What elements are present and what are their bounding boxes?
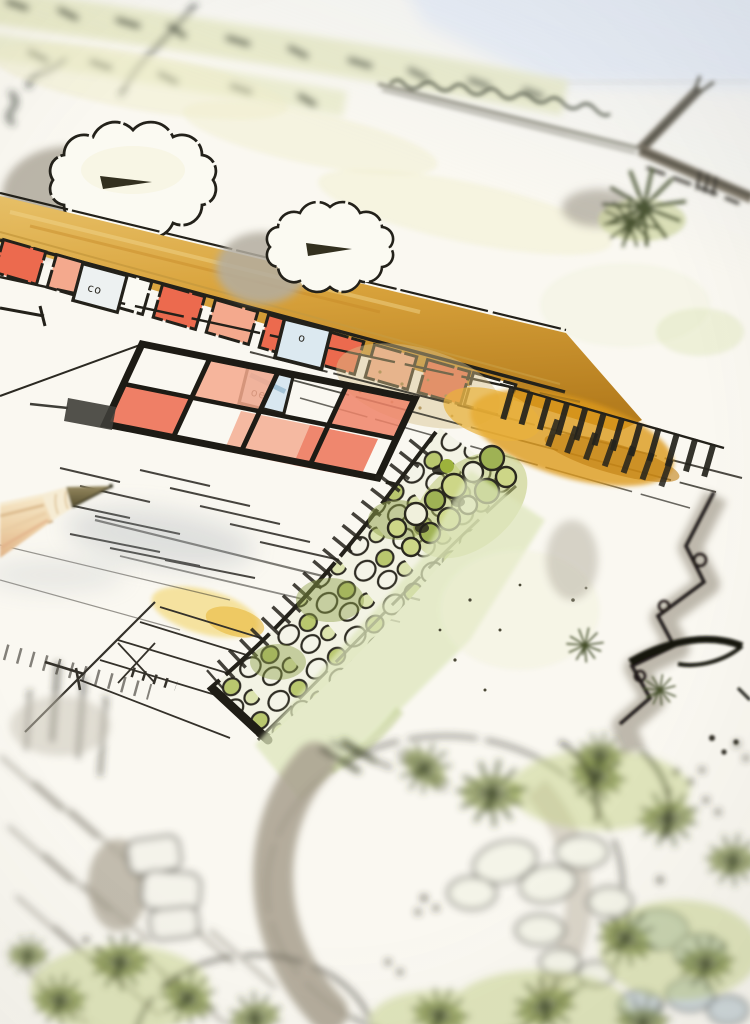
photo-of-garden-plan-sketch: co o oe: [0, 0, 750, 1024]
sketch-photo: co o oe: [0, 0, 750, 1024]
tree-canopy-2: [267, 202, 393, 292]
